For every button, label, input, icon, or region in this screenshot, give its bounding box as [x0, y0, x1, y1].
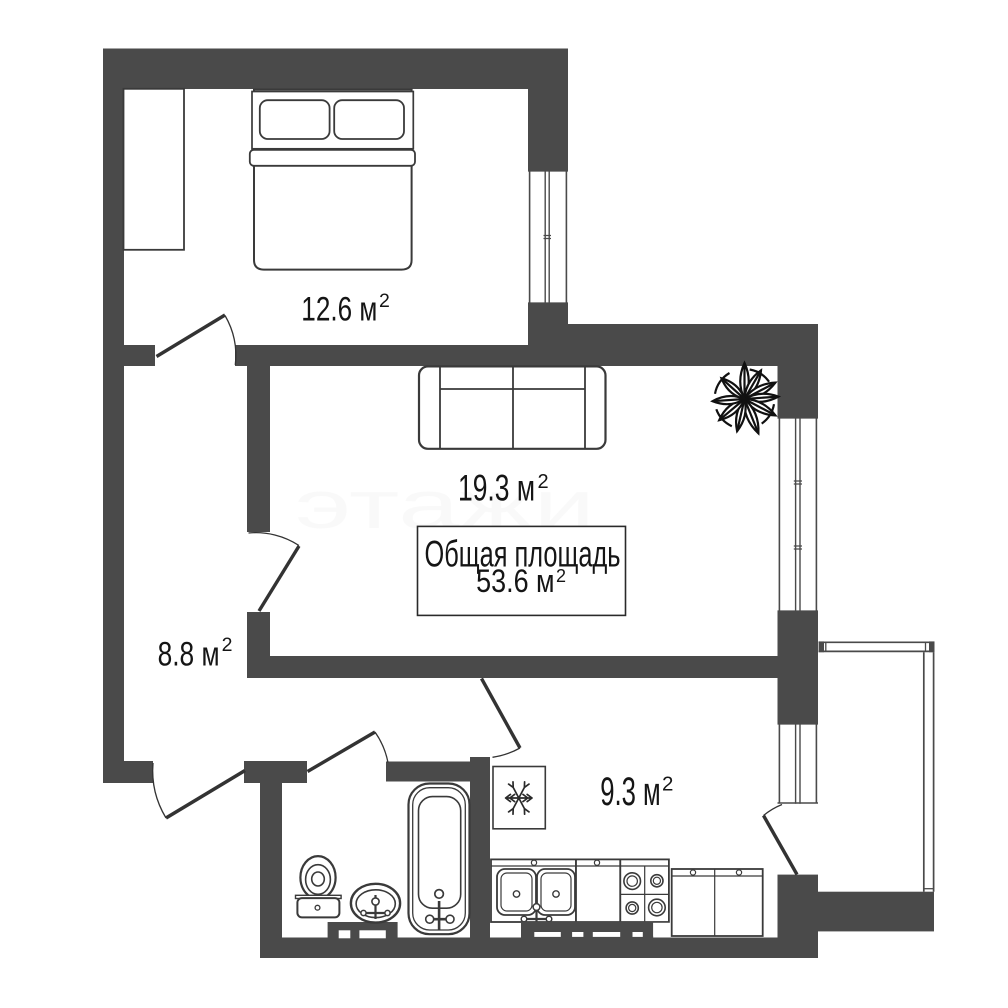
svg-text:9.3 м: 9.3 м [600, 770, 661, 814]
svg-text:12.6 м: 12.6 м [301, 290, 377, 328]
svg-text:2: 2 [538, 471, 549, 493]
svg-text:2: 2 [556, 566, 566, 586]
svg-text:2: 2 [662, 773, 673, 796]
svg-text:53.6 м: 53.6 м [476, 563, 554, 599]
svg-text:8.8 м: 8.8 м [158, 636, 220, 674]
svg-text:2: 2 [379, 290, 390, 312]
svg-text:2: 2 [222, 634, 233, 656]
svg-text:19.3 м: 19.3 м [458, 468, 535, 509]
